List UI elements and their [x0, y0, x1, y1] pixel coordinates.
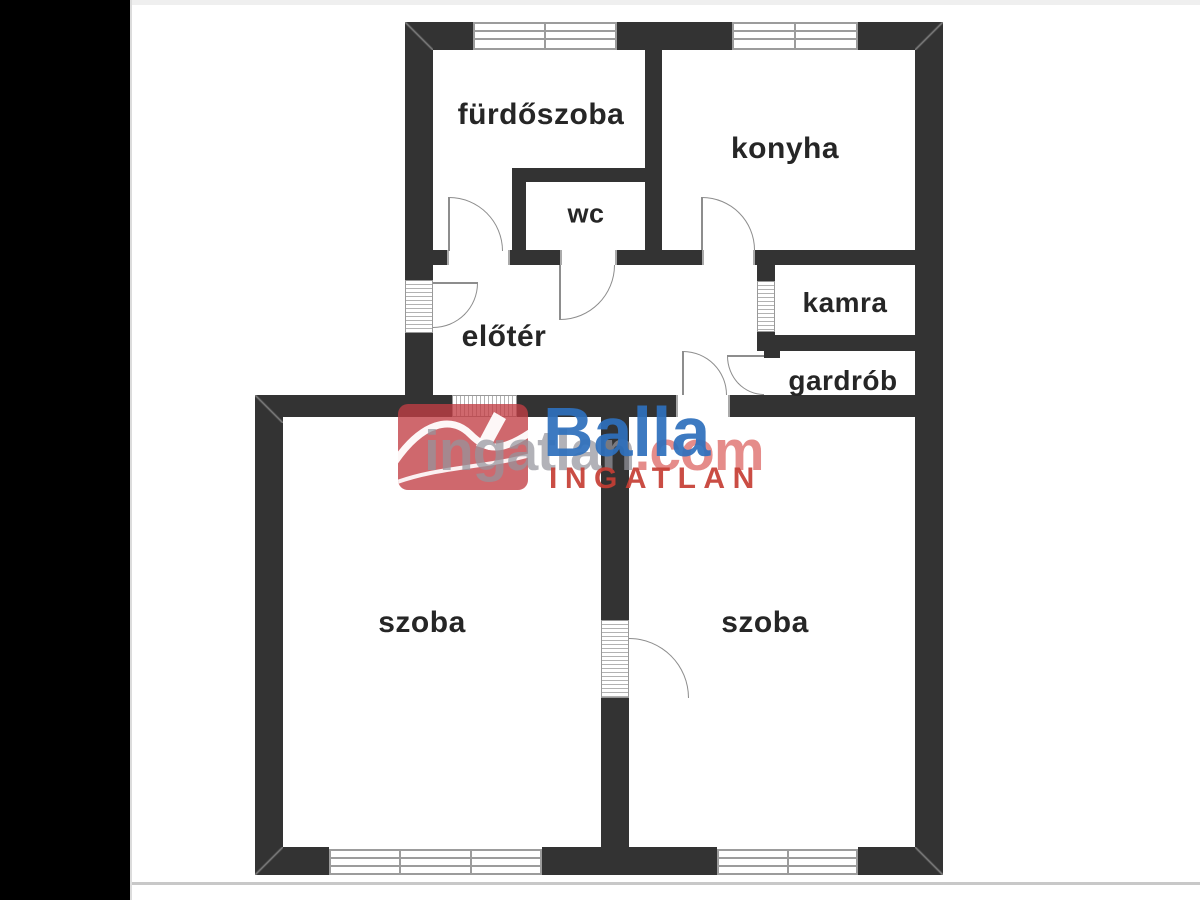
- room-label-eloter: előtér: [462, 320, 547, 354]
- wall-segment: [510, 250, 560, 265]
- door-arc: [560, 265, 615, 320]
- window-pane: [732, 22, 796, 50]
- door-arc: [702, 197, 755, 250]
- wall-segment: [645, 50, 662, 265]
- left-black-bar: [0, 0, 130, 900]
- wall-segment: [433, 250, 447, 265]
- floorplan-image: fürdőszoba konyha wc előtér kamra gardró…: [0, 0, 1200, 900]
- door-arc: [449, 197, 503, 251]
- wall-segment: [255, 395, 283, 875]
- window-pane: [787, 849, 859, 875]
- window-pane: [794, 22, 858, 50]
- pantry-door-panel: [757, 281, 775, 332]
- corner-miter: [255, 847, 283, 875]
- wall-segment: [915, 22, 943, 875]
- room-label-konyha: konyha: [731, 132, 839, 166]
- window-pane: [329, 849, 401, 875]
- room-label-szoba-left: szoba: [378, 606, 466, 640]
- room-label-kamra: kamra: [802, 287, 887, 319]
- wall-segment: [757, 265, 775, 281]
- door-leaf: [559, 265, 561, 320]
- door-arc: [727, 356, 764, 395]
- room-label-szoba-right: szoba: [721, 606, 809, 640]
- window-pane: [473, 22, 546, 50]
- corner-miter: [915, 22, 943, 50]
- room-label-furdoszoba: fürdőszoba: [458, 98, 625, 132]
- left-bar-edge-line: [130, 0, 132, 900]
- door-leaf: [727, 355, 764, 357]
- wall-segment: [730, 395, 943, 417]
- door-leaf: [433, 282, 478, 284]
- wall-segment: [755, 250, 915, 265]
- room-label-wc: wc: [567, 199, 604, 230]
- wall-segment: [405, 333, 433, 395]
- door-arc: [683, 351, 727, 395]
- window-symbol: [732, 22, 858, 50]
- door-opening: [702, 250, 755, 265]
- wall-segment: [542, 847, 717, 875]
- window-pane: [717, 849, 789, 875]
- bottom-gray-line: [132, 882, 1200, 885]
- door-leaf: [682, 351, 684, 395]
- door-arc: [629, 638, 689, 698]
- window-symbol: [473, 22, 617, 50]
- door-leaf: [448, 197, 450, 251]
- wall-segment: [617, 22, 732, 50]
- door-leaf: [701, 197, 703, 250]
- top-gray-strip: [132, 0, 1200, 5]
- wall-segment: [764, 351, 780, 358]
- window-symbol: [717, 849, 858, 875]
- window-symbol: [329, 849, 542, 875]
- wall-segment: [617, 250, 702, 265]
- balla-ingatlan-subtitle: INGATLAN: [549, 462, 762, 496]
- corner-miter: [255, 395, 283, 423]
- corner-miter: [405, 22, 433, 50]
- door-opening: [447, 250, 510, 265]
- window-pane: [544, 22, 617, 50]
- wall-segment: [512, 168, 662, 182]
- wall-segment: [405, 22, 433, 280]
- entry-door-panel: [405, 280, 433, 333]
- window-pane: [399, 849, 471, 875]
- wall-segment: [757, 335, 915, 351]
- corner-miter: [915, 847, 943, 875]
- balla-logo-text: Balla: [543, 392, 710, 472]
- window-pane: [470, 849, 542, 875]
- door-opening: [560, 250, 617, 265]
- room-label-gardrob: gardrób: [788, 365, 897, 397]
- door-panel: [601, 620, 629, 698]
